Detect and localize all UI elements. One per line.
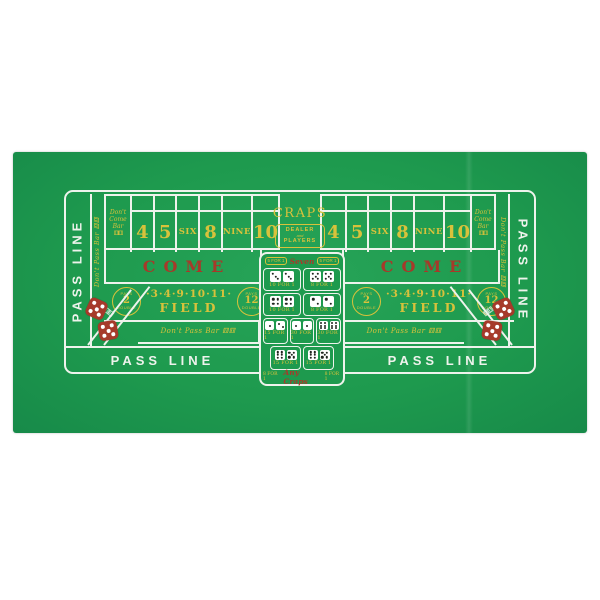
hard-four-bet[interactable]: 8 FOR 1: [303, 293, 341, 316]
left-half: Don't Come Bar ⚅⚅ 4 5 SIX 8 NINE 10 COME…: [104, 194, 280, 344]
odds-strip-cell: [198, 196, 221, 212]
twelve-dice-icon: [319, 321, 339, 330]
odds-strip-cell: [367, 196, 390, 212]
craps-felt-photo: PASS LINE PASS LINE Don't Pass Bar ⚅⚅ Do…: [0, 0, 600, 600]
two-dice-icon: [292, 321, 312, 330]
eleven-dice-icon: [275, 350, 297, 360]
odds-strip-cell: [130, 196, 153, 212]
craps-center-block: CRAPS DEALER and PLAYERS: [256, 206, 344, 248]
bar-12-dice-icon: ⚅⚅: [114, 231, 122, 238]
eleven-bet[interactable]: 15 FOR 1: [303, 346, 334, 370]
field-numbers: ·3·4·9·10·11· FIELD: [386, 288, 472, 315]
pass-line-label: PASS LINE: [111, 353, 215, 368]
hard-ten-bet[interactable]: 8 FOR 1: [303, 268, 341, 291]
two-bet[interactable]: 30 FOR 1: [290, 318, 315, 344]
twelve-bet[interactable]: 30 FOR 1: [316, 318, 341, 344]
bar-12-dice-icon: ⚅⚅: [428, 327, 441, 335]
three-bet[interactable]: 15 FOR 1: [263, 318, 288, 344]
odds-strip-cell: [413, 196, 443, 212]
right-half: Don't Come Bar ⚅⚅ 4 5 SIX 8 NINE 10 COME…: [320, 194, 496, 344]
proposition-box: 5 FOR 1 Seven 5 FOR 1 10 FOR 1 8 FOR 1 1…: [259, 252, 345, 386]
come-area[interactable]: COME: [104, 250, 262, 284]
field-pays-2-circle: PAYS 2 DOUBLE: [352, 287, 381, 316]
odds-strip-cell: [443, 196, 470, 212]
point-number-grid: Don't Come Bar ⚅⚅ 4 5 SIX 8 NINE 10: [320, 194, 496, 250]
eleven-bet[interactable]: 15 FOR 1: [270, 346, 301, 370]
hard-eight-bet[interactable]: 10 FOR 1: [263, 293, 301, 316]
odds-strip-cell: [345, 196, 368, 212]
hard-six-dice-icon: [270, 271, 294, 282]
hard-six-bet[interactable]: 10 FOR 1: [263, 268, 301, 291]
any-craps-bet[interactable]: 8 FOR 1 Any Craps 8 FOR 1: [263, 370, 341, 384]
come-label: COME: [135, 257, 232, 276]
point-box-six[interactable]: SIX: [367, 212, 390, 252]
come-label: COME: [373, 257, 470, 276]
point-box-8[interactable]: 8: [390, 212, 413, 252]
pass-line-bottom-left[interactable]: PASS LINE: [66, 346, 259, 372]
dont-pass-bar-left-vertical[interactable]: Don't Pass Bar ⚅⚅: [90, 196, 104, 308]
pass-line-label: PASS LINE: [516, 218, 531, 322]
odds-strip-cell: [221, 196, 251, 212]
dont-come-box[interactable]: Don't Come Bar ⚅⚅: [470, 196, 494, 252]
odds-strip-cell: [175, 196, 198, 212]
point-box-nine[interactable]: NINE: [221, 212, 251, 252]
bar-12-dice-icon: ⚅⚅: [479, 231, 487, 238]
hard-ten-dice-icon: [310, 271, 334, 282]
pass-line-label: PASS LINE: [388, 353, 492, 368]
seven-pay-right: 5 FOR 1: [317, 257, 339, 265]
dont-pass-bar-label: Don't Pass Bar ⚅⚅: [93, 217, 101, 287]
point-box-six[interactable]: SIX: [175, 212, 198, 252]
dont-pass-bar-strip[interactable]: Don't Pass Bar ⚅⚅: [138, 320, 260, 344]
bar-12-dice-icon: ⚅⚅: [93, 217, 101, 229]
pass-line-bottom-right[interactable]: PASS LINE: [345, 346, 534, 372]
point-number-grid: Don't Come Bar ⚅⚅ 4 5 SIX 8 NINE 10: [104, 194, 280, 250]
odds-strip-cell: [390, 196, 413, 212]
point-box-10[interactable]: 10: [443, 212, 470, 252]
any-craps-label: Any Craps: [283, 368, 320, 386]
hard-eight-dice-icon: [270, 296, 294, 307]
hard-four-dice-icon: [310, 296, 334, 307]
seven-bet[interactable]: 5 FOR 1 Seven 5 FOR 1: [263, 254, 341, 268]
dont-come-box[interactable]: Don't Come Bar ⚅⚅: [106, 196, 130, 252]
point-box-5[interactable]: 5: [345, 212, 368, 252]
bar-12-dice-icon: ⚅⚅: [222, 327, 235, 335]
odds-strip-cell: [153, 196, 176, 212]
dont-pass-bar-strip[interactable]: Don't Pass Bar ⚅⚅: [342, 320, 464, 344]
pass-line-label: PASS LINE: [70, 218, 85, 322]
field-numbers: ·3·4·9·10·11· FIELD: [146, 288, 232, 315]
point-box-5[interactable]: 5: [153, 212, 176, 252]
three-dice-icon: [265, 321, 285, 330]
craps-title: CRAPS: [256, 206, 344, 221]
point-box-nine[interactable]: NINE: [413, 212, 443, 252]
seven-pay-left: 5 FOR 1: [265, 257, 287, 265]
come-area[interactable]: COME: [342, 250, 500, 284]
point-box-4[interactable]: 4: [130, 212, 153, 252]
dont-pass-bar-label: Don't Pass Bar ⚅⚅: [499, 217, 507, 287]
dealer-players-box: DEALER and PLAYERS: [275, 224, 325, 248]
decorative-red-die: [97, 320, 120, 347]
seven-label: Seven: [290, 257, 315, 266]
dont-pass-bar-label: Don't Pass Bar ⚅⚅: [367, 327, 442, 335]
eleven-dice-icon: [308, 350, 330, 360]
dont-pass-bar-label: Don't Pass Bar ⚅⚅: [161, 327, 236, 335]
point-box-8[interactable]: 8: [198, 212, 221, 252]
